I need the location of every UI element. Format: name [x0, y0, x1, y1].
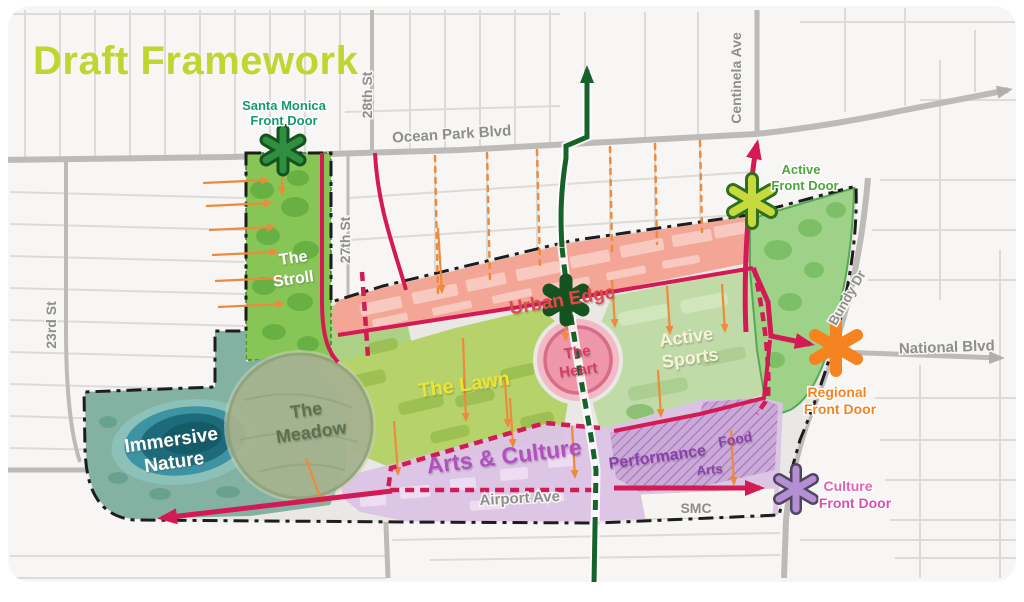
smc-label: SMC	[680, 500, 711, 516]
front-door-label-santa-monica-line2: Front Door	[250, 113, 317, 128]
front-door-label-active-line1: Active	[781, 162, 820, 177]
zone-label-arts: Arts	[696, 461, 723, 478]
draft-framework-map-page: { "title": { "text": "Draft Framework" }…	[0, 0, 1024, 602]
street-label-28th-st: 28th St	[359, 71, 375, 118]
street-label-national: National Blvd	[899, 337, 995, 357]
front-door-label-culture-line2: Front Door	[819, 495, 892, 511]
street-label-centinela: Centinela Ave	[728, 32, 744, 124]
front-door-label-santa-monica-line1: Santa Monica	[242, 98, 327, 113]
page-title: Draft Framework	[33, 39, 359, 83]
street-label-27th-st: 27th St	[337, 216, 353, 263]
front-door-label-regional-line2: Front Door	[804, 401, 877, 417]
map-canvas: Draft Framework Ocean Park Blvd 28th St …	[0, 0, 1024, 602]
front-door-label-culture-line1: Culture	[824, 478, 873, 494]
active-front-door-star	[733, 179, 771, 223]
santa-monica-front-door-star	[266, 130, 300, 170]
street-label-23rd-st: 23rd St	[43, 301, 59, 349]
front-door-label-regional-line1: Regional	[807, 384, 866, 400]
front-door-label-active-line2: Front Door	[771, 178, 838, 193]
